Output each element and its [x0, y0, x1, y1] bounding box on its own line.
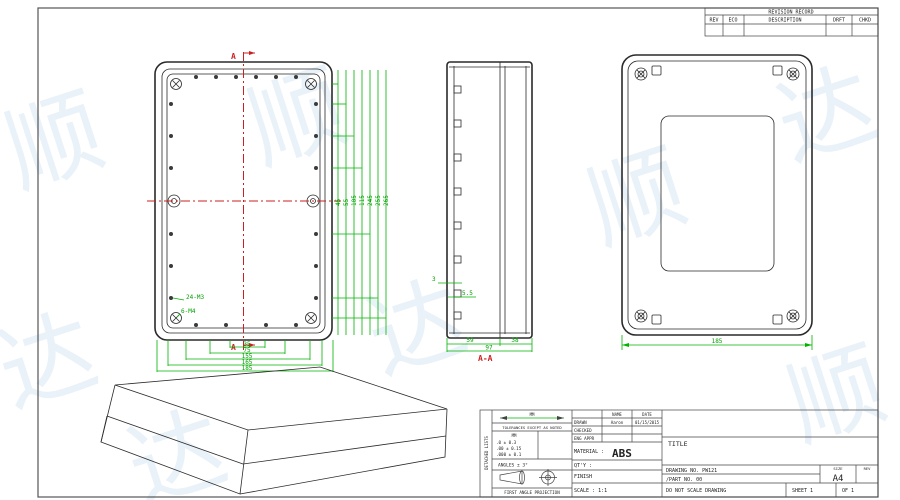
part-no: /PART NO. 00 [666, 477, 702, 483]
side-label: DETACHED LISTS [484, 436, 489, 470]
dim-5-5: 5.5 [462, 290, 473, 297]
watermark-glyph: 顺 [774, 329, 898, 463]
date-header: DATE [642, 412, 652, 417]
revision-col-eco: ECO [728, 18, 737, 24]
material-value: ABS [612, 447, 632, 460]
drawn-name: Aaron [611, 420, 624, 425]
tolerance-section: MM TOLERANCES EXCEPT AS NOTED MM .0 ± 0.… [492, 412, 572, 495]
dim-185: 185 [712, 338, 723, 345]
projection-label: FIRST ANGLE PROJECTION [504, 490, 560, 495]
drawn-label: DRAWN [574, 420, 587, 425]
watermark-glyph: 达 [0, 295, 110, 429]
name-header: NAME [612, 412, 622, 417]
watermark-glyph: 顺 [575, 132, 699, 266]
m4-callout: 6-M4 [181, 308, 196, 315]
drawn-date: 01/15/2015 [635, 420, 660, 425]
rev-label: REV [864, 466, 872, 471]
size-value: A4 [833, 474, 844, 484]
dim-right-6: 255 [375, 195, 382, 206]
lid-dim-bottom: 185 [622, 335, 812, 350]
dim-right-7: 265 [383, 195, 390, 206]
size-label: SIZE [833, 466, 843, 471]
dim-59: 59 [466, 337, 474, 344]
dim-right-5: 245 [367, 195, 374, 206]
tol-unit: MM [512, 433, 517, 438]
revision-col-description: DESCRIPTION [768, 18, 801, 24]
finish-label: FINISH [574, 474, 592, 480]
tol-row-2: .00 ± 0.15 [496, 446, 522, 451]
title-label: TITLE [668, 440, 688, 448]
qty-label: QT'Y : [574, 463, 592, 469]
checked-label: CHECKED [574, 428, 592, 433]
section-view: 3 5.5 59 38 97 A-A [432, 62, 532, 363]
approval-section: NAME DATE DRAWN Aaron 01/15/2015 CHECKED… [572, 410, 662, 494]
watermark-glyph: 达 [355, 262, 479, 396]
of-label: OF 1 [842, 488, 854, 494]
dim-38: 38 [511, 337, 519, 344]
dim-note: MM [530, 412, 535, 417]
dim-right-2: 55 [343, 198, 350, 206]
dim-right-3: 105 [351, 195, 358, 206]
eng-appr-label: ENG APPR [574, 436, 595, 441]
sheet-label: SHEET 1 [792, 488, 813, 494]
dim-3: 3 [432, 276, 436, 283]
angles-note: ANGLES ± 3° [498, 463, 528, 469]
section-bosses [454, 86, 461, 319]
watermark-glyph: 达 [115, 392, 239, 500]
scale-label: SCALE : 1:1 [574, 488, 607, 494]
thread-callouts: 24-M3 6-M4 [173, 294, 204, 317]
drawing-sheet: 顺 达 顺 达 顺 达 顺 达 REVISION RECORD REV ECO … [0, 0, 900, 500]
dim-right-4: 115 [359, 195, 366, 206]
material-label: MATERIAL : [574, 449, 604, 455]
section-label-a-bottom: A [231, 343, 236, 352]
tol-row-1: .0 ± 0.3 [496, 440, 517, 445]
revision-col-chkd: CHKD [859, 18, 871, 24]
revision-col-drft: DRFT [833, 18, 845, 24]
watermark-glyph: 顺 [0, 75, 117, 209]
do-not-scale: DO NOT SCALE DRAWING [666, 488, 726, 494]
revision-table-title: REVISION RECORD [768, 10, 813, 16]
m3-callout: 24-M3 [186, 294, 204, 301]
dim-right-1: 45 [335, 198, 342, 206]
tolerance-note: TOLERANCES EXCEPT AS NOTED [502, 425, 562, 430]
dim-97: 97 [485, 345, 493, 352]
watermark-glyph: 达 [764, 49, 888, 183]
revision-col-rev: REV [709, 18, 718, 24]
section-title: A-A [478, 354, 493, 363]
tol-row-3: .000 ± 0.1 [496, 452, 522, 457]
dim-bottom-5: 185 [242, 365, 253, 372]
revision-table: REVISION RECORD REV ECO DESCRIPTION DRFT… [705, 8, 878, 36]
projection-symbol [500, 469, 557, 486]
section-label-a-top: A [231, 52, 236, 61]
drawing-no: DRAWING NO. PW121 [666, 468, 717, 474]
watermark: 顺 达 顺 达 顺 达 顺 达 [0, 49, 899, 500]
front-dims-bottom: 35 75 155 165 185 [157, 340, 333, 372]
watermark-glyph: 顺 [235, 52, 359, 186]
